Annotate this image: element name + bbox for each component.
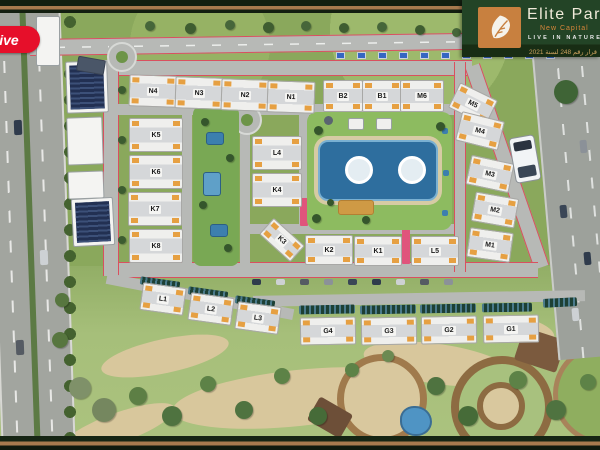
tree [263,22,274,33]
tree [312,214,321,223]
tree [546,400,566,420]
brand-logo-panel: Elite Park New Capital LIVE IN NATURE قر… [462,0,600,57]
brand-tagline: LIVE IN NATURE [528,35,600,41]
tree [274,368,290,384]
tree [145,21,155,31]
tree [339,23,349,33]
masterplan-render: N4N3N2N1B2B1M6M5M4M3M2M1K5K6K7K8L4K4K3K2… [0,0,600,450]
brand-subtitle: New Capital [540,25,589,32]
tree [118,186,126,194]
tree [377,22,387,32]
tree [69,377,91,399]
tree [309,407,327,425]
tree [226,154,234,162]
license-text: قرار رقم 248 لسنة 2021 [529,48,597,56]
live-badge-label: live [0,32,19,48]
tree [345,363,359,377]
tree [452,28,461,37]
tree [235,401,253,419]
tree [185,23,196,34]
tree [199,201,207,209]
tree [129,387,147,405]
tree [118,136,126,144]
tree [327,199,334,206]
tree [92,398,116,422]
tree [436,122,445,131]
brand-name: Elite Park [527,6,600,24]
tree [382,350,394,362]
tree [52,332,68,348]
tree [200,376,216,392]
tree [301,21,311,31]
tree [458,406,478,426]
tree [554,80,578,104]
tree [201,118,209,126]
frame-bottom-band [0,436,600,450]
tree [509,371,527,389]
tree [427,377,445,395]
tree [162,406,182,426]
tree [225,20,235,30]
trees-layer [0,0,600,450]
tree [580,374,596,390]
leaf-icon [478,7,521,48]
tree [224,244,232,252]
tree [118,236,126,244]
tree [415,25,425,35]
tree [118,86,126,94]
live-watermark-badge: live [0,26,40,53]
tree [55,293,69,307]
tree [362,216,370,224]
tree [314,126,323,135]
